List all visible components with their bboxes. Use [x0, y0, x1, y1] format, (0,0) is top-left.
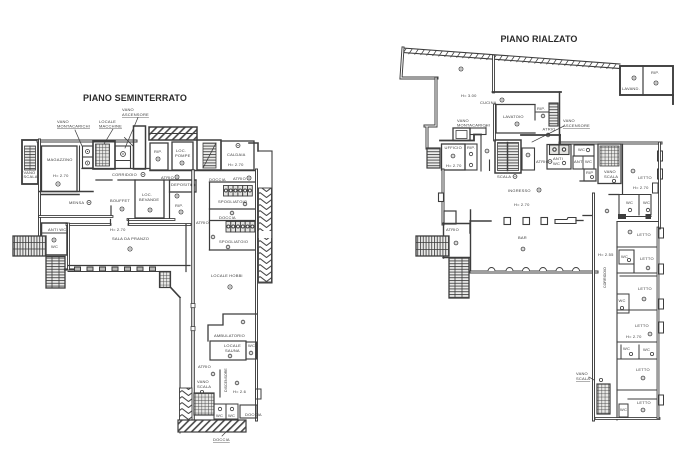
- svg-text:MONTACARICHI: MONTACARICHI: [457, 123, 490, 128]
- svg-text:SCALA: SCALA: [604, 174, 618, 179]
- svg-text:SCALA: SCALA: [497, 174, 511, 179]
- svg-text:LETTO: LETTO: [638, 175, 652, 180]
- svg-text:UFFICIO: UFFICIO: [445, 145, 462, 150]
- svg-text:ATRIO: ATRIO: [233, 176, 246, 181]
- svg-text:CORRIDOIO: CORRIDOIO: [603, 267, 607, 288]
- svg-text:DOCCIA: DOCCIA: [219, 215, 236, 220]
- svg-text:WC: WC: [578, 147, 585, 152]
- svg-text:WC: WC: [643, 347, 650, 352]
- svg-text:PIANO RIALZATO: PIANO RIALZATO: [500, 34, 577, 44]
- svg-text:BEVANDE: BEVANDE: [139, 197, 159, 202]
- svg-text:MENSA: MENSA: [69, 200, 84, 205]
- svg-text:WC: WC: [619, 298, 626, 303]
- svg-text:LETTO: LETTO: [640, 256, 654, 261]
- svg-text:LAVAND.: LAVAND.: [622, 86, 640, 91]
- svg-text:POMPE: POMPE: [175, 153, 191, 158]
- svg-text:WC: WC: [216, 413, 223, 418]
- svg-text:WC: WC: [626, 200, 633, 205]
- svg-text:ASCENSORE: ASCENSORE: [122, 112, 149, 117]
- svg-text:ATRIO: ATRIO: [196, 220, 209, 225]
- svg-text:H= 2.70: H= 2.70: [446, 163, 462, 168]
- svg-text:WC: WC: [643, 200, 650, 205]
- svg-text:ATRIO: ATRIO: [446, 227, 459, 232]
- svg-text:BOUFFET: BOUFFET: [110, 198, 130, 203]
- svg-text:WC: WC: [585, 159, 592, 164]
- svg-text:H= 2.70: H= 2.70: [633, 185, 649, 190]
- svg-text:RIP.: RIP.: [537, 106, 545, 111]
- svg-text:H= 2.70: H= 2.70: [514, 202, 530, 207]
- svg-text:CORRIDOIO: CORRIDOIO: [112, 172, 137, 177]
- svg-text:RIP: RIP: [586, 170, 593, 175]
- svg-text:WC: WC: [228, 413, 235, 418]
- svg-text:CALDAIA: CALDAIA: [227, 152, 246, 157]
- svg-text:DISCENSORE: DISCENSORE: [224, 368, 228, 392]
- svg-text:WC: WC: [620, 407, 627, 412]
- svg-text:RIP.: RIP.: [467, 145, 475, 150]
- svg-text:LETTO: LETTO: [635, 323, 649, 328]
- svg-text:LETTO: LETTO: [638, 286, 652, 291]
- svg-text:SPOGLIATOIO: SPOGLIATOIO: [218, 199, 247, 204]
- svg-text:AMBULATORIO: AMBULATORIO: [214, 333, 245, 338]
- svg-text:DOCCIA: DOCCIA: [245, 412, 262, 417]
- svg-text:WC: WC: [51, 244, 58, 249]
- svg-text:DOCCIA: DOCCIA: [213, 437, 230, 442]
- svg-text:LETTO: LETTO: [636, 367, 650, 372]
- svg-text:H= 2.70: H= 2.70: [53, 173, 69, 178]
- svg-text:H= 2.6: H= 2.6: [233, 389, 247, 394]
- svg-text:RIP.: RIP.: [154, 149, 162, 154]
- svg-text:ATRIO: ATRIO: [161, 175, 174, 180]
- svg-text:SCALA: SCALA: [24, 174, 38, 179]
- svg-text:DEPOSITO: DEPOSITO: [171, 182, 193, 187]
- svg-text:SCALA: SCALA: [197, 384, 211, 389]
- svg-text:LETTO: LETTO: [637, 232, 651, 237]
- svg-text:WC: WC: [248, 343, 255, 348]
- svg-text:H= 3.00: H= 3.00: [461, 93, 477, 98]
- svg-text:SALA DA PRANZO: SALA DA PRANZO: [112, 236, 149, 241]
- svg-text:LAVATOIO: LAVATOIO: [503, 114, 524, 119]
- svg-text:MAGAZZINO: MAGAZZINO: [47, 157, 73, 162]
- svg-text:H= 2.70: H= 2.70: [228, 162, 244, 167]
- svg-text:H= 2.70: H= 2.70: [110, 227, 126, 232]
- svg-text:SPOGLIATOIO: SPOGLIATOIO: [219, 239, 248, 244]
- svg-text:PIANO SEMINTERRATO: PIANO SEMINTERRATO: [83, 93, 187, 103]
- svg-text:RIP.: RIP.: [651, 70, 659, 75]
- svg-text:INGRESSO: INGRESSO: [508, 188, 531, 193]
- svg-text:DOCCIA: DOCCIA: [209, 177, 226, 182]
- svg-text:WC: WC: [621, 254, 628, 259]
- svg-text:ASCENSORE: ASCENSORE: [563, 123, 590, 128]
- svg-text:ANTI WC: ANTI WC: [48, 227, 66, 232]
- svg-text:MACCHINE: MACCHINE: [99, 124, 122, 129]
- svg-text:RIP.: RIP.: [175, 203, 183, 208]
- svg-text:WC: WC: [553, 161, 560, 166]
- svg-text:MONTACARICHI: MONTACARICHI: [57, 124, 90, 129]
- svg-text:ANT: ANT: [574, 159, 583, 164]
- svg-text:LETTO: LETTO: [637, 400, 651, 405]
- svg-text:SCALA: SCALA: [576, 376, 590, 381]
- svg-text:H= 2.70: H= 2.70: [626, 334, 642, 339]
- svg-text:ATRIO: ATRIO: [198, 364, 211, 369]
- svg-text:LOCALE HOBBI: LOCALE HOBBI: [211, 273, 243, 278]
- svg-text:WC: WC: [623, 346, 630, 351]
- svg-text:SAUNA: SAUNA: [225, 348, 240, 353]
- svg-text:ATRIO: ATRIO: [543, 127, 556, 132]
- svg-text:H= 2.55: H= 2.55: [598, 252, 614, 257]
- svg-text:BAR: BAR: [518, 235, 527, 240]
